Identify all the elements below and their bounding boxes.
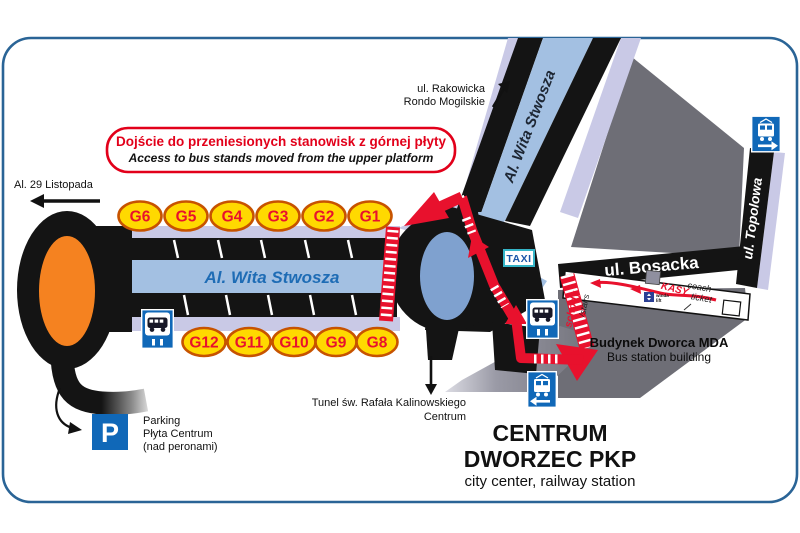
svg-text:Tunel św. Rafała Kalinowskiego: Tunel św. Rafała Kalinowskiego [312,397,466,409]
building-entrance [645,270,660,284]
roundabout-west-island [39,236,95,346]
taxi-label: TAXI [506,253,531,265]
svg-text:city center, railway station: city center, railway station [465,473,636,490]
svg-text:Rondo Mogilskie: Rondo Mogilskie [404,96,485,108]
label-mda-building: Budynek Dworca MDA Bus station building [590,335,729,364]
svg-text:G2: G2 [314,209,335,226]
roundabout-center-island [420,232,474,320]
parking-letter: P [101,418,119,448]
parking-label-1: Parking [143,415,180,427]
parking-label-3: (nad peronami) [143,441,218,453]
parking-label-2: Płyta Centrum [143,428,213,440]
svg-text:G4: G4 [222,209,243,226]
svg-text:Centrum: Centrum [424,411,466,423]
road-wita-stwosza-horizontal: Al. Wita Stwosza [100,238,397,317]
legend-title-pl: Dojście do przeniesionych stanowisk z gó… [116,134,447,149]
bus-stop-icon-west [142,310,174,349]
svg-text:G5: G5 [176,209,197,226]
svg-text:Budynek Dworca MDA: Budynek Dworca MDA [590,335,729,350]
svg-text:G9: G9 [326,335,347,352]
legend-title-en: Access to bus stands moved from the uppe… [128,151,434,165]
svg-text:G3: G3 [268,209,289,226]
svg-text:G1: G1 [360,209,381,226]
taxi-sign: TAXI [504,250,534,266]
svg-text:G11: G11 [235,335,264,352]
svg-text:ul. Rakowicka: ul. Rakowicka [417,83,486,95]
tram-stop-icon-east [752,116,781,152]
svg-text:G10: G10 [279,335,308,352]
svg-text:G8: G8 [367,335,388,352]
svg-text:Bus station building: Bus station building [607,350,711,364]
tram-stop-icon-south [528,372,557,408]
station-map: Al. Wita Stwosza Al. Wita Stwosza ul. Bo… [0,0,800,533]
svg-text:G6: G6 [130,209,151,226]
svg-text:Al. 29 Listopada: Al. 29 Listopada [14,179,94,191]
svg-text:G12: G12 [189,335,218,352]
svg-text:CENTRUM: CENTRUM [493,420,608,446]
street-label-wita-stwosza: Al. Wita Stwosza [204,268,340,287]
station-map-page: Al. Wita Stwosza Al. Wita Stwosza ul. Bo… [0,0,800,533]
legend-title-box: Dojście do przeniesionych stanowisk z gó… [107,128,455,172]
svg-text:DWORZEC PKP: DWORZEC PKP [464,446,637,472]
bus-stop-icon-center [527,300,559,339]
label-lift: lift [656,298,662,303]
